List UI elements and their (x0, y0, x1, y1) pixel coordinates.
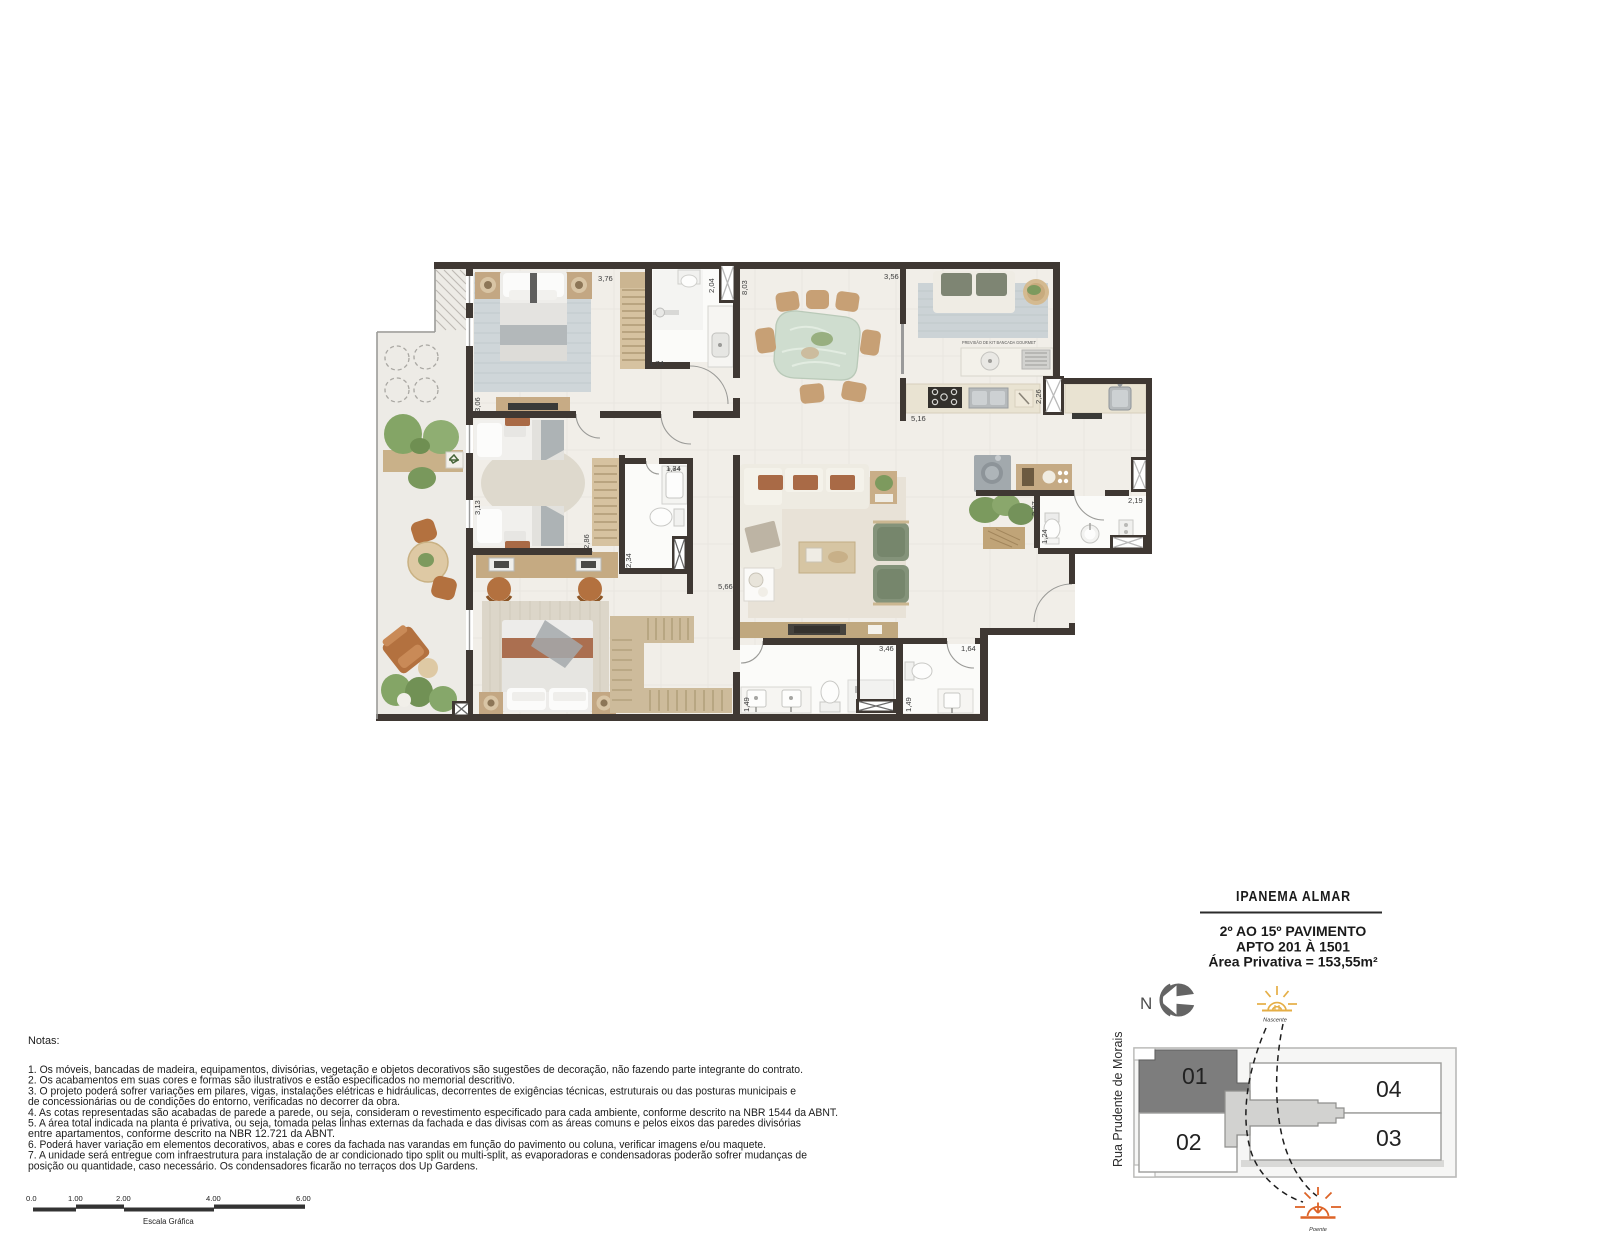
svg-text:PREVISÃO DE KIT BANCADA GOURME: PREVISÃO DE KIT BANCADA GOURMET (962, 339, 1036, 345)
svg-text:2º AO 15º PAVIMENTO: 2º AO 15º PAVIMENTO (1220, 923, 1367, 939)
svg-text:Poente: Poente (1309, 1227, 1327, 1233)
svg-text:1,64: 1,64 (961, 644, 976, 653)
svg-text:2,34: 2,34 (624, 553, 633, 568)
svg-text:2.00: 2.00 (116, 1194, 131, 1203)
svg-text:0.0: 0.0 (26, 1194, 37, 1203)
svg-text:02: 02 (1176, 1129, 1202, 1155)
svg-text:3,76: 3,76 (598, 274, 613, 283)
svg-text:IPANEMA ALMAR: IPANEMA ALMAR (1236, 889, 1351, 905)
svg-text:1,49: 1,49 (904, 697, 913, 712)
svg-text:2,87: 2,87 (1030, 501, 1039, 516)
svg-text:3,06: 3,06 (473, 397, 482, 412)
svg-text:2,19: 2,19 (1128, 496, 1143, 505)
svg-text:6.00: 6.00 (296, 1194, 311, 1203)
svg-text:Escala Gráfica: Escala Gráfica (143, 1217, 194, 1226)
svg-text:4.00: 4.00 (206, 1194, 221, 1203)
svg-text:8,03: 8,03 (740, 280, 749, 295)
svg-text:3,56: 3,56 (884, 272, 899, 281)
svg-text:APTO 201 À 1501: APTO 201 À 1501 (1236, 939, 1350, 955)
svg-text:1,74: 1,74 (649, 359, 664, 368)
svg-text:1,49: 1,49 (742, 697, 751, 712)
svg-text:3,13: 3,13 (473, 500, 482, 515)
svg-text:Rua Prudente de Morais: Rua Prudente de Morais (1111, 1032, 1125, 1168)
svg-text:04: 04 (1376, 1076, 1402, 1102)
svg-text:Notas:: Notas: (28, 1035, 59, 1047)
svg-text:2,04: 2,04 (707, 278, 716, 293)
svg-text:Área Privativa = 153,55m²: Área Privativa = 153,55m² (1208, 954, 1378, 970)
svg-text:01: 01 (1182, 1063, 1208, 1089)
svg-text:1.00: 1.00 (68, 1194, 83, 1203)
svg-text:2,26: 2,26 (1034, 389, 1043, 404)
svg-text:Nascente: Nascente (1263, 1018, 1287, 1024)
svg-text:N: N (1140, 994, 1152, 1013)
svg-text:5,66: 5,66 (718, 582, 733, 591)
svg-text:2,86: 2,86 (582, 534, 591, 549)
svg-text:1,34: 1,34 (666, 464, 681, 473)
svg-text:5,16: 5,16 (911, 414, 926, 423)
svg-text:posição ou quantidade, caso ne: posição ou quantidade, caso necessário. … (28, 1160, 478, 1172)
svg-text:1,24: 1,24 (1040, 529, 1049, 544)
svg-text:3,46: 3,46 (879, 644, 894, 653)
svg-text:03: 03 (1376, 1125, 1402, 1151)
